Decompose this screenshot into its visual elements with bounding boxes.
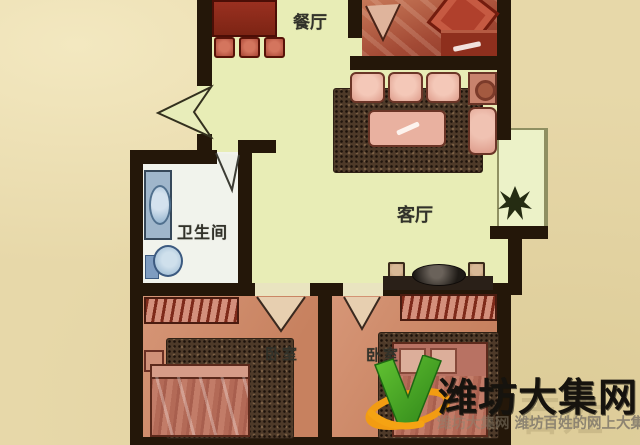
room-label-dining: 餐厅: [293, 8, 327, 33]
bathroom-door-swing: [216, 153, 239, 190]
floorplan-image: 餐厅 客厅 卫生间 卧室 卧室 百姓网 潍坊大集网 潍坊大集网 潍坊百姓的网上大…: [0, 0, 640, 445]
room-label-bedroom-left: 卧室: [265, 343, 299, 364]
watermark-tagline-prefix: 潍坊大集网: [437, 416, 510, 432]
bedroom-right-door-swing: [344, 297, 380, 329]
bedroom-left-door-swing: [257, 297, 305, 331]
study-door-swing: [366, 4, 400, 40]
watermark-tagline-main: 潍坊百姓的网上大集: [515, 416, 640, 432]
room-label-living: 客厅: [397, 201, 433, 227]
watermark-tagline: 潍坊大集网 潍坊百姓的网上大集: [437, 412, 640, 433]
room-label-bathroom: 卫生间: [177, 219, 228, 243]
plant-icon: [498, 186, 532, 220]
entry-arrow-icon: [158, 87, 211, 137]
